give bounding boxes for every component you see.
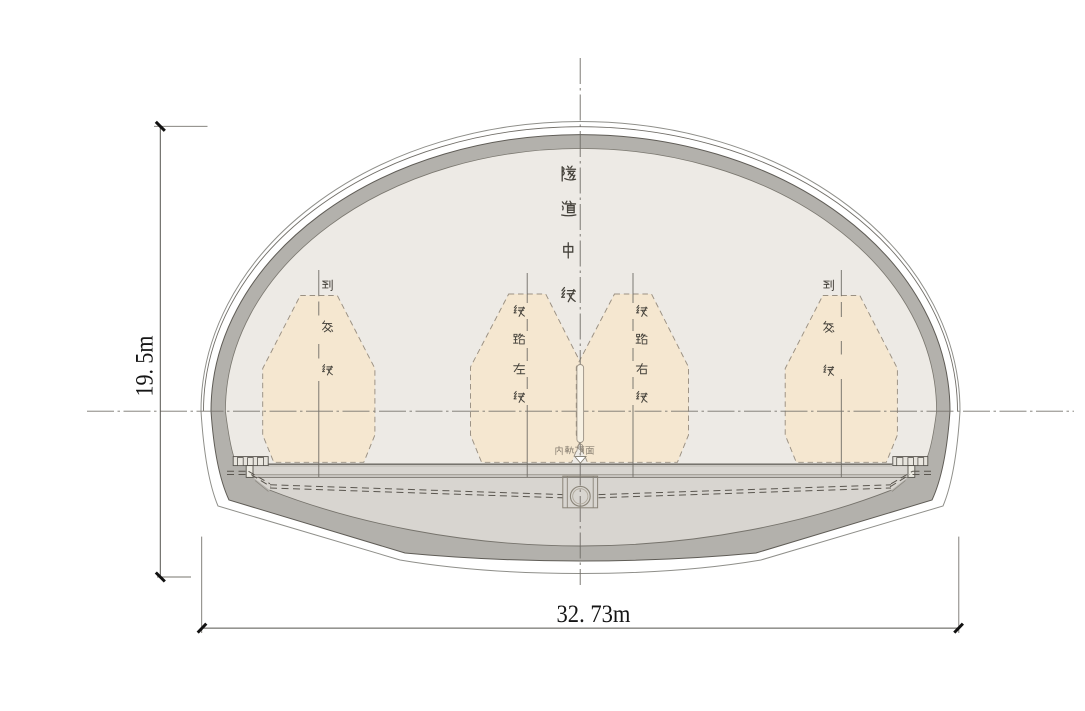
svg-text:32. 73m: 32. 73m <box>557 599 631 628</box>
svg-text:19. 5m: 19. 5m <box>130 335 159 396</box>
